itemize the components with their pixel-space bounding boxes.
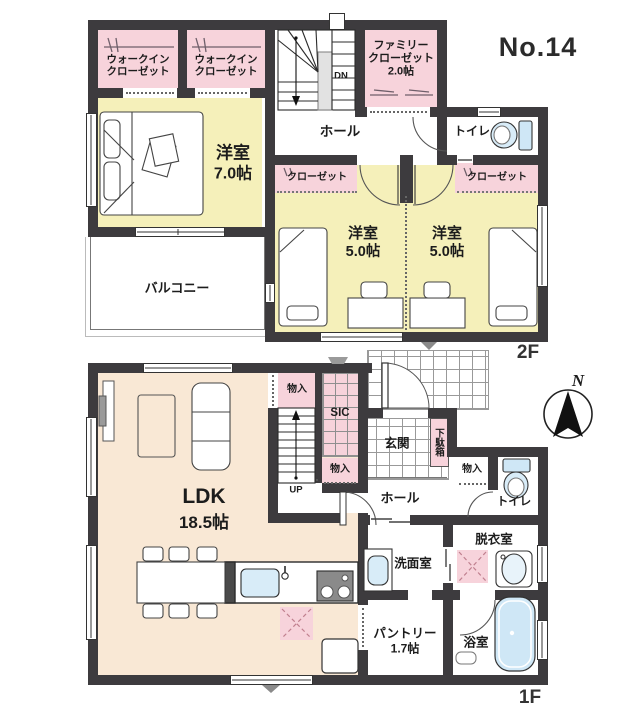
vent-marker [328,357,348,364]
floor-plan: No.14 2F 1F ウォークインクローゼット ウォークインクローゼット ファ… [0,0,620,714]
washroom-label: 洗面室 [394,557,432,572]
dressing-room-label: 脱衣室 [475,533,513,548]
dining-set [137,547,225,618]
washing-machine-icon [496,551,532,587]
closet-right-label: クローゼット [467,172,527,184]
fridge-space-dashes [282,609,311,638]
bedroom-main-label: 洋室7.0帖 [214,144,252,185]
vent-marker [262,685,280,693]
bathroom-label: 浴室 [463,636,488,651]
washer-pan-dashes [459,552,486,581]
compass-north-label: N [572,371,584,391]
compass-icon [544,390,592,438]
entrance-label: 玄関 [384,437,409,452]
closet-left-label: クローゼット [287,172,347,184]
vent-marker [421,342,437,350]
toilet-icon-2f [491,121,532,150]
sic-label: SIC [330,407,349,421]
floor2-label: 2F [517,342,539,364]
shoe-cabinet-label: 下駄箱 [429,419,448,465]
hall2-label: ホール [320,124,361,140]
family-closet-label: ファミリークローゼット2.0帖 [368,40,434,79]
front-door [382,363,429,408]
double-bed [100,112,203,215]
desks [348,282,465,328]
floor1-label: 1F [519,687,541,709]
bedroom-right-label: 洋室5.0帖 [430,225,465,261]
toilet2-label: トイレ [454,124,490,138]
plan-number: No.14 [499,32,578,64]
hall1-label: ホール [380,490,419,505]
hall-door-leaf [340,492,346,525]
wic2-label: ウォークインクローゼット [195,54,258,79]
single-beds [279,228,537,326]
stairs-up-icon [278,408,315,483]
low-table-icon [138,395,175,457]
kitchen-counter [225,562,358,603]
wic1-label: ウォークインクローゼット [107,54,170,79]
toilet-icon-1f [503,459,530,498]
storage-mid-label: 物入 [330,464,350,476]
stairs-down-label: DN [334,70,348,81]
sofa-icon [192,383,230,470]
toilet1-label: トイレ [497,496,532,510]
stairs-up-label: UP [289,484,302,495]
ldk-label: LDK18.5帖 [179,485,229,535]
tv-board-icon [99,381,114,441]
storage-hall-label: 物入 [462,464,482,476]
cupboard-icon [322,639,358,673]
balcony-label: バルコニー [145,280,210,295]
vanity-icon [364,549,392,591]
bedroom-left-label: 洋室5.0帖 [346,225,381,261]
pantry-label: パントリー1.7帖 [373,626,436,656]
storage-top-label: 物入 [287,384,307,396]
